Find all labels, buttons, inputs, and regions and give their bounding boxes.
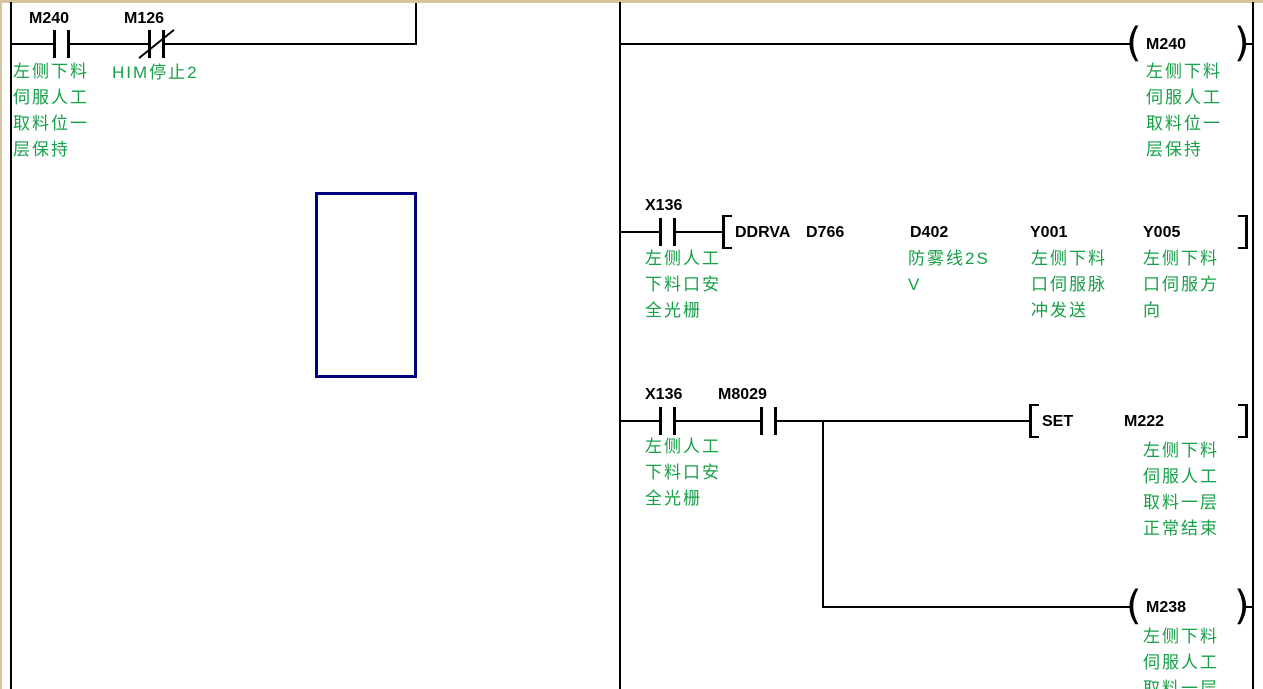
contact-m126-nc[interactable] [148,30,165,58]
device-comment: 左侧下料 伺服人工 取料一层 [1143,624,1219,689]
instruction-bracket [722,215,732,217]
contact-gap [662,218,673,246]
window-frame-top-edge [0,0,1263,3]
right-pane-right-bus-bar [1252,2,1254,689]
coil-paren [1234,23,1250,63]
instruction-operand: M222 [1124,413,1164,430]
contact-m8029-no[interactable] [760,407,777,435]
contact-leg [53,30,56,58]
contact-label: M8029 [718,386,767,403]
contact-label: M126 [124,10,164,27]
coil-paren [1126,586,1142,626]
instruction-bracket [1245,215,1248,249]
contact-leg [760,407,763,435]
coil-paren [1234,586,1250,626]
coil-paren [1126,23,1142,63]
instruction-operand: D402 [910,224,948,241]
contact-x136-no[interactable] [659,218,676,246]
instruction-operand: Y005 [1143,224,1180,241]
instruction-opcode: DDRVA [735,224,790,241]
ladder-editor-canvas: M240 左侧下料 伺服人工 取料位一 层保持 M126 HIM停止2 M240… [0,0,1263,689]
contact-leg [67,30,70,58]
wire [822,606,1130,608]
wire [619,420,1031,422]
selection-cursor-rect[interactable] [315,192,417,378]
instruction-bracket [1238,215,1248,217]
contact-leg [774,407,777,435]
instruction-bracket [1029,436,1039,438]
contact-gap [56,30,67,58]
wire [619,43,1130,45]
contact-m240-no[interactable] [53,30,70,58]
contact-leg [673,407,676,435]
contact-label: M240 [29,10,69,27]
instruction-bracket [1238,436,1248,438]
wire [10,43,417,45]
coil-label: M240 [1146,36,1186,53]
contact-x136-no[interactable] [659,407,676,435]
device-comment: 左侧下料 伺服人工 取料一层 正常结束 [1143,438,1219,542]
instruction-bracket [722,215,725,249]
contact-gap [763,407,774,435]
instruction-operand: Y001 [1030,224,1067,241]
instruction-bracket [1029,404,1039,406]
device-comment: 左侧人工 下料口安 全光栅 [645,246,721,324]
contact-leg [148,30,151,58]
instruction-operand: D766 [806,224,844,241]
contact-leg [659,218,662,246]
contact-leg [673,218,676,246]
instruction-bracket [1029,404,1032,438]
instruction-bracket [722,247,732,249]
contact-gap [662,407,673,435]
wire-branch [822,420,824,608]
wire-wrap-connector [415,3,417,45]
device-comment: 左侧人工 下料口安 全光栅 [645,434,721,512]
window-frame-left-edge [0,0,2,689]
instruction-bracket [1245,404,1248,438]
contact-label: X136 [645,197,682,214]
device-comment: 左侧下料 伺服人工 取料位一 层保持 [13,59,89,163]
device-comment: 左侧下料 口伺服脉 冲发送 [1031,246,1107,324]
device-comment: 防雾线2S V [908,246,990,298]
right-pane-left-bus-bar [619,2,621,689]
contact-leg [162,30,165,58]
instruction-bracket [1238,247,1248,249]
device-comment: 左侧下料 口伺服方 向 [1143,246,1219,324]
device-comment: HIM停止2 [112,60,199,86]
instruction-bracket [1238,404,1248,406]
instruction-opcode: SET [1042,413,1073,430]
contact-leg [659,407,662,435]
coil-label: M238 [1146,599,1186,616]
contact-label: X136 [645,386,682,403]
left-pane-bus-bar [10,2,12,689]
device-comment: 左侧下料 伺服人工 取料位一 层保持 [1146,59,1222,163]
